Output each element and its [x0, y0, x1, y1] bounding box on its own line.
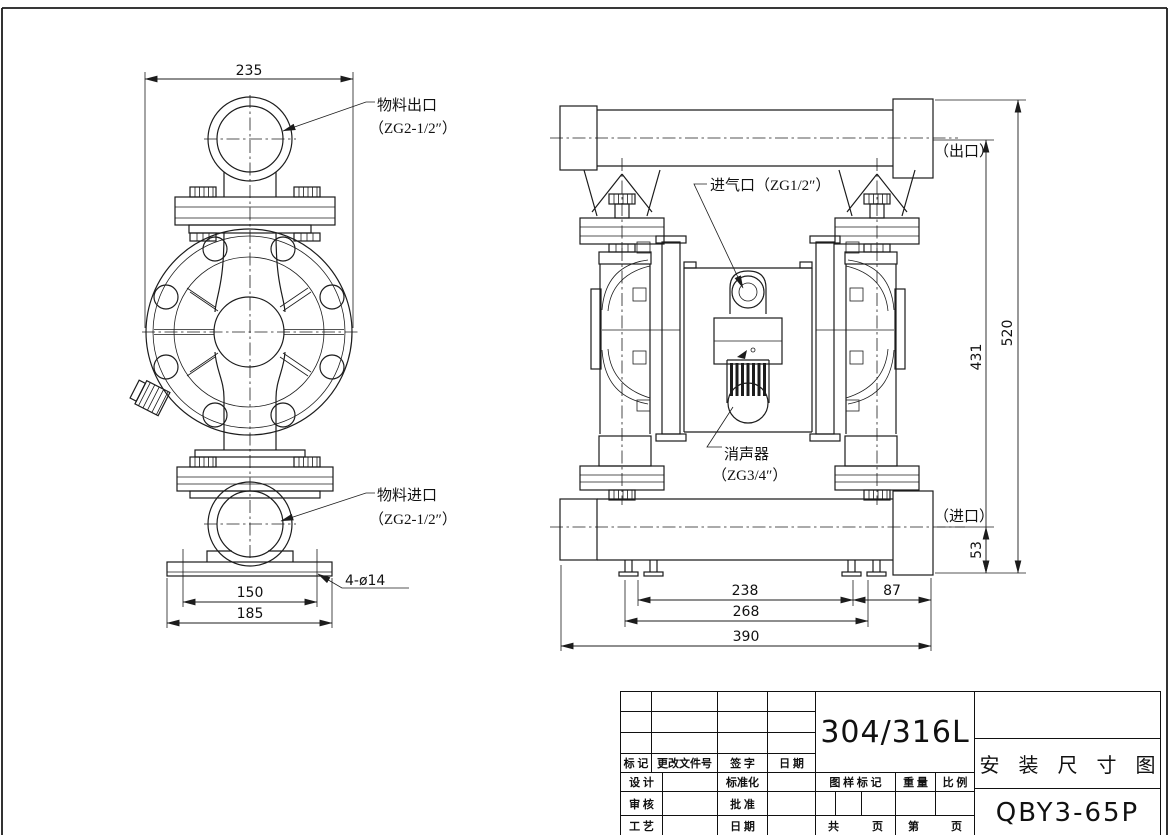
rev-cell	[652, 712, 718, 733]
mark-header: 标 记	[621, 754, 652, 773]
top-port-flanges	[580, 194, 919, 264]
dim-238: 238	[638, 580, 853, 606]
date2-value	[768, 816, 816, 835]
side-view: （出口）	[550, 99, 1026, 651]
rev-cell	[621, 712, 652, 733]
front-view: 235 物料出口 （ZG2-1/2″）	[129, 63, 457, 628]
weight-value	[896, 792, 936, 816]
signature-header: 签 字	[718, 754, 768, 773]
sheets-total-label: 共	[828, 818, 839, 834]
muffler	[727, 360, 769, 423]
approve-value	[768, 792, 816, 816]
dim-520: 520	[935, 100, 1026, 573]
dim-268-text: 268	[733, 604, 760, 620]
drawing-sheet: 235 物料出口 （ZG2-1/2″）	[0, 0, 1170, 835]
pump-body	[129, 229, 352, 450]
material-box: 304/316L	[816, 692, 975, 773]
check-label: 审 核	[621, 792, 663, 816]
dim-150-text: 150	[237, 585, 264, 601]
sheet-no-label: 第	[908, 818, 919, 834]
date2-label: 日 期	[718, 816, 768, 835]
right-diaphragm-chamber	[810, 236, 905, 441]
weight-label: 重 量	[896, 773, 936, 792]
dim-87-text: 87	[883, 583, 901, 599]
muffler-label-line2: （ZG3/4″）	[712, 467, 787, 484]
dim-87: 87	[853, 583, 931, 600]
standardize-value	[768, 773, 816, 792]
standardize-label: 标准化	[718, 773, 768, 792]
dim-520-text: 520	[1000, 320, 1016, 347]
air-inlet-label-text: 进气口（ZG1/2″）	[710, 177, 830, 194]
air-inlet-port	[732, 276, 764, 308]
stamp-label: 图 样 标 记	[816, 773, 896, 792]
rev-cell	[621, 692, 652, 712]
approve-label: 批 准	[718, 792, 768, 816]
outlet-note: （出口）	[934, 143, 994, 160]
scale-label: 比 例	[936, 773, 975, 792]
outlet-label-line1: 物料出口	[377, 97, 437, 114]
air-valve-body	[684, 262, 812, 432]
sheet-no-cell: 第 页	[896, 816, 975, 835]
rev-cell	[652, 733, 718, 754]
model-number: QBY3-65P	[975, 789, 1160, 835]
dim-235: 235	[145, 63, 353, 328]
top-manifold	[550, 99, 958, 178]
sheets-total-cell: 共 页	[816, 816, 896, 835]
stamp-sub-cell	[836, 792, 862, 816]
design-label: 设 计	[621, 773, 663, 792]
stamp-sub-cell	[862, 792, 896, 816]
craft-label: 工 艺	[621, 816, 663, 835]
check-value	[663, 792, 718, 816]
rev-cell	[718, 733, 768, 754]
sheets-total-unit: 页	[872, 818, 883, 834]
rev-cell	[768, 733, 816, 754]
scale-value	[936, 792, 975, 816]
muffler-label: 消声器 （ZG3/4″）	[707, 407, 787, 484]
inlet-label-line1: 物料进口	[377, 487, 437, 504]
inlet-label-line2: （ZG2-1/2″）	[369, 511, 457, 528]
left-diaphragm-chamber	[591, 236, 686, 441]
holes-note-text: 4-ø14	[345, 573, 385, 589]
craft-value	[663, 816, 718, 835]
company-box	[975, 692, 1160, 739]
sheet-no-unit: 页	[951, 818, 962, 834]
dim-390-text: 390	[733, 629, 760, 645]
top-flange	[175, 187, 335, 241]
rev-cell	[768, 692, 816, 712]
air-valve-knob	[129, 378, 170, 416]
rev-cell	[718, 692, 768, 712]
title-block: 标 记 更改文件号 签 字 日 期 304/316L 设 计 标准化 图 样 标…	[620, 691, 1161, 835]
drawing-title: 安 装 尺 寸 图	[975, 739, 1160, 789]
inlet-note: （进口）	[934, 508, 994, 525]
mounting-feet	[619, 560, 886, 576]
nameplate-arrow	[737, 350, 747, 359]
dim-150: 150	[183, 585, 317, 602]
design-value	[663, 773, 718, 792]
stamp-sub-cell	[816, 792, 836, 816]
change-doc-header: 更改文件号	[652, 754, 718, 773]
rev-cell	[718, 712, 768, 733]
dim-53-text: 53	[969, 541, 985, 559]
outlet-label-line2: （ZG2-1/2″）	[369, 120, 457, 137]
inlet-label: 物料进口 （ZG2-1/2″）	[281, 487, 457, 528]
bottom-manifold	[550, 491, 965, 575]
rev-cell	[621, 733, 652, 754]
rev-cell	[652, 692, 718, 712]
dim-53: 53	[937, 527, 994, 573]
muffler-label-line1: 消声器	[724, 445, 769, 463]
date-header: 日 期	[768, 754, 816, 773]
dim-238-text: 238	[732, 583, 759, 599]
rev-cell	[768, 712, 816, 733]
outlet-label: 物料出口 （ZG2-1/2″）	[283, 97, 457, 137]
dim-431-text: 431	[969, 344, 985, 371]
air-inlet-label: 进气口（ZG1/2″）	[694, 177, 830, 288]
dim-185-text: 185	[237, 606, 264, 622]
dim-235-text: 235	[236, 63, 263, 79]
